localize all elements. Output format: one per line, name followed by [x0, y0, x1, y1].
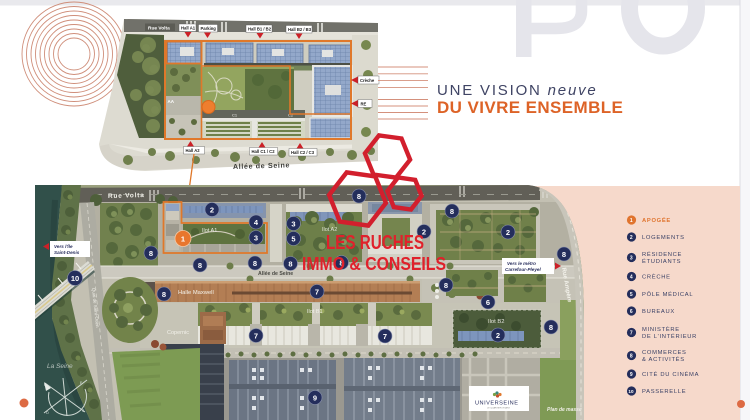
svg-text:CITÉ DU CINÉMA: CITÉ DU CINÉMA — [642, 371, 699, 378]
svg-text:9: 9 — [630, 372, 633, 378]
svg-text:8: 8 — [198, 261, 202, 270]
svg-text:AA: AA — [168, 99, 175, 104]
svg-text:2: 2 — [506, 228, 510, 237]
svg-text:C1: C1 — [232, 113, 238, 118]
svg-text:LOGEMENTS: LOGEMENTS — [642, 235, 685, 241]
svg-text:Carrefour-Pleyel: Carrefour-Pleyel — [505, 267, 541, 272]
svg-text:9: 9 — [313, 393, 317, 402]
svg-text:Hall B1 / B2: Hall B1 / B2 — [248, 27, 272, 32]
svg-text:Vers le métro: Vers le métro — [507, 261, 536, 266]
svg-text:Hall B2 / B3: Hall B2 / B3 — [288, 27, 312, 32]
svg-text:& ACTIVITÉS: & ACTIVITÉS — [642, 356, 685, 363]
svg-text:3: 3 — [254, 233, 258, 242]
svg-text:8: 8 — [549, 323, 553, 332]
svg-text:8: 8 — [253, 259, 257, 268]
svg-text:Halle Maxwell: Halle Maxwell — [178, 290, 214, 296]
svg-text:RE: RE — [361, 102, 367, 107]
svg-text:3: 3 — [291, 219, 295, 228]
svg-text:RÉSIDENCE: RÉSIDENCE — [642, 251, 682, 258]
svg-text:2: 2 — [630, 235, 633, 241]
svg-text:Hall A1: Hall A1 — [181, 26, 196, 31]
svg-text:MINISTÈRE: MINISTÈRE — [642, 326, 680, 333]
svg-text:DE L'INTÉRIEUR: DE L'INTÉRIEUR — [642, 333, 697, 340]
svg-text:Ilot B2: Ilot B2 — [488, 319, 504, 325]
svg-text:5: 5 — [291, 234, 295, 243]
svg-text:Saint-Denis: Saint-Denis — [54, 250, 80, 255]
svg-text:Plan de masse: Plan de masse — [547, 407, 582, 413]
svg-text:Crèche: Crèche — [360, 78, 375, 83]
svg-text:Allée de Seine: Allée de Seine — [258, 271, 293, 277]
svg-text:Hall C2 / C3: Hall C2 / C3 — [291, 150, 315, 155]
svg-text:UNIVERSEINE: UNIVERSEINE — [475, 401, 518, 407]
svg-text:10: 10 — [71, 274, 79, 283]
svg-text:7: 7 — [630, 331, 633, 337]
svg-text:5: 5 — [630, 292, 633, 298]
svg-text:2: 2 — [496, 331, 500, 340]
svg-text:8: 8 — [357, 192, 361, 201]
svg-text:Vers l'île: Vers l'île — [54, 244, 73, 249]
svg-text:PASSERELLE: PASSERELLE — [642, 389, 686, 395]
svg-text:IMMO & CONSEILS: IMMO & CONSEILS — [302, 253, 446, 274]
svg-text:Rue Volta: Rue Volta — [148, 26, 170, 32]
svg-text:CRÈCHE: CRÈCHE — [642, 274, 671, 281]
svg-text:APOGÉE: APOGÉE — [642, 216, 671, 224]
svg-text:Copernic: Copernic — [167, 330, 189, 336]
svg-text:1: 1 — [181, 234, 185, 243]
svg-text:8: 8 — [288, 259, 292, 268]
svg-text:2: 2 — [210, 205, 214, 214]
svg-text:8: 8 — [450, 207, 454, 216]
svg-text:6: 6 — [630, 309, 633, 315]
svg-text:Rue Volta: Rue Volta — [108, 192, 145, 200]
svg-text:COMMERCES: COMMERCES — [642, 350, 687, 356]
svg-text:7: 7 — [383, 332, 387, 341]
svg-text:La Seine: La Seine — [47, 363, 73, 370]
svg-text:O: O — [46, 411, 49, 415]
svg-text:ÉTUDIANTS: ÉTUDIANTS — [642, 258, 681, 265]
svg-text:8: 8 — [149, 249, 153, 258]
svg-text:LES RUCHES: LES RUCHES — [326, 232, 424, 254]
svg-text:8: 8 — [630, 354, 633, 360]
svg-text:6: 6 — [486, 298, 490, 307]
svg-text:Parking: Parking — [201, 26, 217, 31]
svg-text:1: 1 — [630, 218, 633, 224]
svg-text:4: 4 — [630, 275, 633, 281]
svg-text:8: 8 — [562, 250, 566, 259]
svg-text:8: 8 — [162, 290, 166, 299]
svg-text:10: 10 — [628, 389, 634, 394]
svg-text:DU VIVRE ENSEMBLE: DU VIVRE ENSEMBLE — [437, 98, 623, 117]
svg-text:PÔLE MÉDICAL: PÔLE MÉDICAL — [642, 291, 693, 298]
svg-text:Ilot B1: Ilot B1 — [307, 309, 323, 315]
svg-text:UNE VISION neuve: UNE VISION neuve — [437, 82, 598, 99]
svg-text:7: 7 — [315, 287, 319, 296]
svg-text:3: 3 — [630, 256, 633, 262]
svg-text:BUREAUX: BUREAUX — [642, 309, 675, 315]
svg-text:7: 7 — [254, 331, 258, 340]
svg-text:Ilot A1: Ilot A1 — [202, 228, 217, 234]
svg-text:Hall C1 / C2: Hall C1 / C2 — [252, 149, 276, 154]
svg-text:8: 8 — [444, 281, 448, 290]
svg-text:LE QUARTIER VIVANT: LE QUARTIER VIVANT — [487, 407, 511, 410]
svg-text:Allée de Seine: Allée de Seine — [233, 160, 290, 171]
svg-text:Hall A2: Hall A2 — [186, 148, 201, 153]
